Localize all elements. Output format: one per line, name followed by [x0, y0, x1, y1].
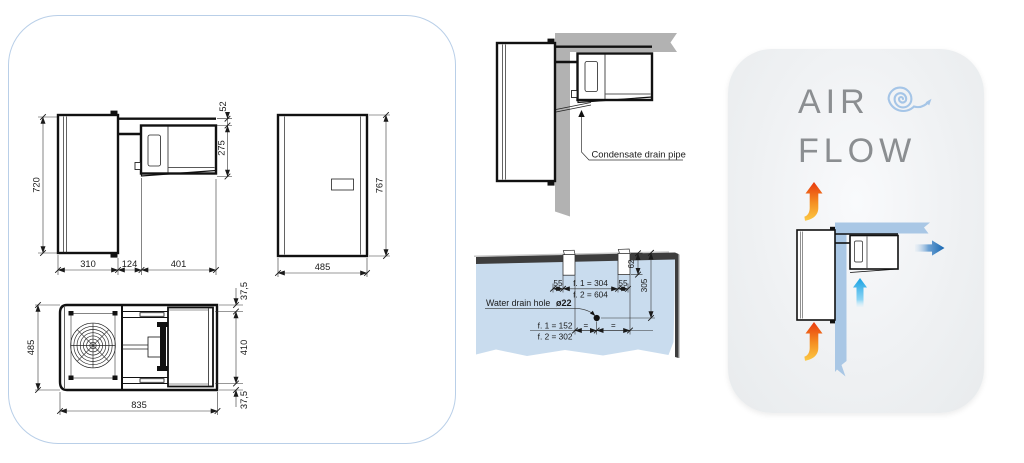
- air-swirl-icon: [874, 75, 946, 131]
- dim-inner-width: 410: [239, 340, 249, 356]
- equal-mark-right: =: [611, 321, 616, 330]
- dim-offset-right: 55: [618, 278, 628, 288]
- dim-front-height: 767: [375, 178, 385, 194]
- dim-wall-gap: 124: [122, 259, 138, 269]
- dim-margin-bottom: 37,5: [239, 391, 249, 409]
- dim-height: 720: [32, 177, 42, 193]
- hot-air-arrow-top: [804, 182, 822, 221]
- drill-template-drawing: 62 305 55 f. 1 = 304 55 f. 2 = 604 Water…: [470, 245, 695, 370]
- dim-width: 485: [315, 262, 331, 272]
- dim-evap-depth: 401: [171, 259, 187, 269]
- drain-hole-label: Water drain hole: [486, 298, 550, 308]
- side-view-drawing: 720 52 275 310 124 401: [30, 100, 240, 290]
- airflow-title-line1: AIR: [798, 85, 870, 119]
- front-view-drawing: 485 767: [250, 100, 400, 285]
- water-drain-hole: [594, 315, 600, 321]
- dim-depth: 485: [26, 340, 36, 356]
- dim-margin-top: 37,5: [239, 282, 249, 300]
- fan-grille: [71, 323, 116, 368]
- dim-evap-height: 275: [217, 140, 227, 156]
- evaporator-top: [168, 308, 213, 387]
- callout-arrow: [578, 110, 584, 117]
- dim-offset-left: 55: [553, 278, 563, 288]
- drain-hole-diameter: ø22: [556, 298, 572, 308]
- airflow-title-line2: FLOW: [798, 134, 916, 168]
- coldroom-wall-band: [835, 234, 847, 377]
- mount-bracket-top: [111, 111, 118, 115]
- mount-bracket-bottom: [111, 253, 118, 257]
- dim-gap-top: 52: [218, 101, 228, 111]
- airflow-panel: AIR FLOW: [728, 49, 984, 413]
- dim-center-f1: f. 1 = 152: [538, 320, 573, 330]
- evaporator-mini: [850, 236, 898, 270]
- coldroom-ceiling-band: [835, 223, 930, 234]
- condensate-callout: Condensate drain pipe: [592, 149, 686, 160]
- wall-section-drawing: Condensate drain pipe: [480, 20, 695, 225]
- dim-pitch-f1: f. 1 = 304: [573, 278, 608, 288]
- airflow-diagram: [728, 173, 984, 413]
- dim-depth-condenser: 310: [80, 259, 96, 269]
- dim-length: 835: [131, 400, 147, 410]
- condenser-body: [58, 115, 118, 253]
- coldroom-ceiling-panel: [555, 33, 677, 52]
- dim-center-f2: f. 2 = 302: [538, 332, 573, 342]
- mounting-notch-left: [563, 255, 575, 276]
- coldroom-wall-panel: [555, 52, 570, 217]
- dim-pitch-f2: f. 2 = 604: [573, 290, 608, 300]
- hot-air-arrow-bottom: [804, 322, 822, 361]
- evaporator-body: [578, 54, 653, 101]
- equal-mark-left: =: [583, 321, 588, 330]
- drain-outlet: [135, 163, 141, 170]
- cold-air-arrow: [853, 278, 867, 307]
- wall-clamp: [148, 337, 162, 357]
- dim-vertical-offset: 305: [639, 278, 649, 292]
- air-out-arrow: [915, 240, 945, 255]
- dim-notch-depth: 62: [627, 260, 636, 269]
- top-view-drawing: 485 37,5 410 37,5 835: [15, 278, 260, 443]
